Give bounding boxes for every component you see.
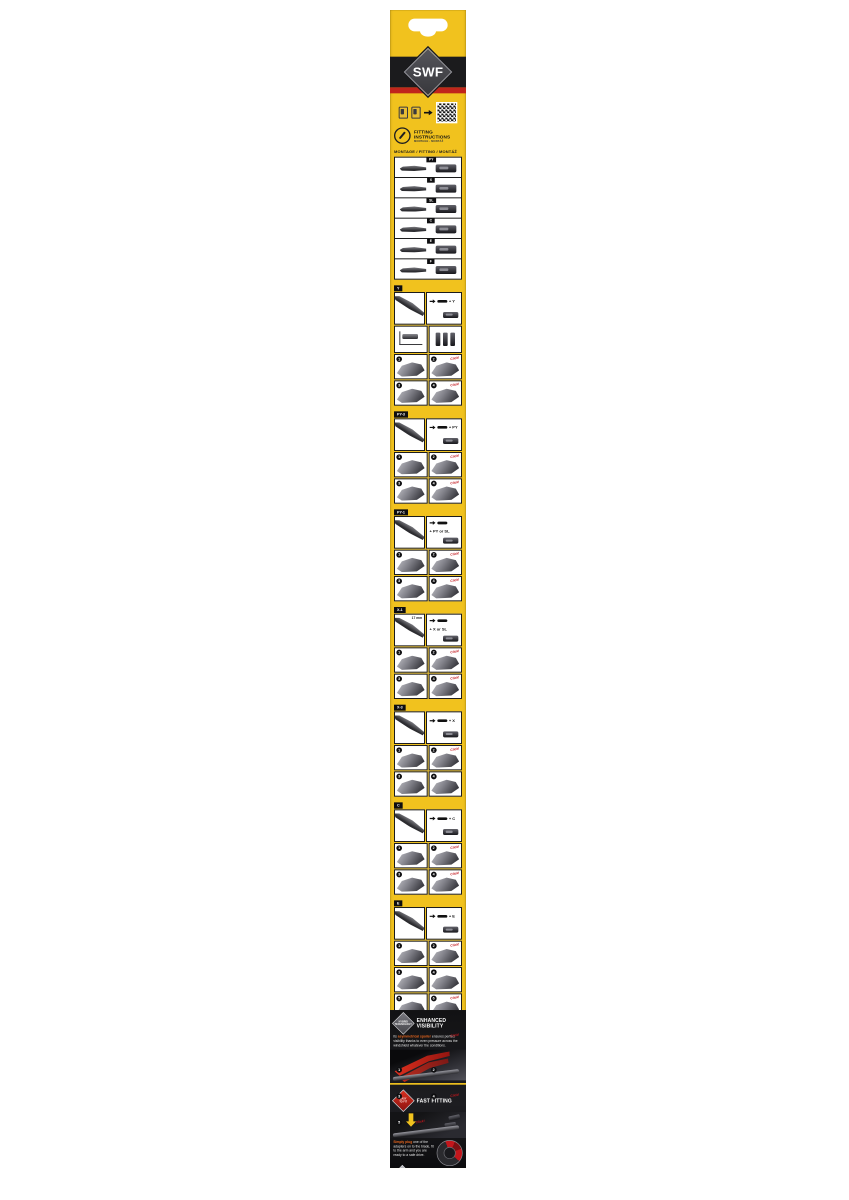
section-intro-row: + PY or SL — [394, 516, 462, 549]
arm-diagram-panel — [394, 907, 425, 940]
adapter-formula-panel: + X or SL — [426, 614, 462, 647]
fitting-instructions-titles: FITTING INSTRUCTIONS MONTAGE · MONTÁŽ — [414, 129, 462, 143]
step-number: 6 — [431, 996, 437, 1002]
steps-grid: 12Click!3456Click! — [394, 941, 462, 1019]
fitting-highlight: Simply plug — [393, 1140, 412, 1144]
arrow-right-icon — [430, 619, 436, 623]
step-number: 1 — [396, 748, 402, 754]
montage-heading: MONTAGE / FITTING / MONTÁŽ — [394, 149, 462, 154]
step-number: 2 — [431, 1067, 437, 1073]
adapter-overview-row: F — [395, 259, 461, 278]
step-photo — [431, 681, 459, 696]
adapter-variants-diagram — [430, 327, 462, 352]
adapter-wheel-image — [437, 1140, 463, 1166]
step-photo — [397, 583, 425, 598]
adapter-overview-row: SL — [395, 198, 461, 218]
wiper-blade-icon — [437, 915, 447, 918]
arrow-right-icon — [430, 914, 436, 918]
fitting-section-c: C+ C12Click!34Click! — [394, 802, 462, 894]
adapter-diagram — [443, 636, 458, 642]
section-intro-row: 17 mm+ X or SL — [394, 614, 462, 647]
step-number: 2 — [431, 845, 437, 851]
adapter-overview-row: PY — [395, 158, 461, 178]
adapter-overview: PYXSLCEF — [394, 157, 462, 280]
step-photo — [431, 752, 459, 767]
section-label: Y — [394, 285, 402, 291]
section-intro-row: + C — [394, 809, 462, 842]
click-note: Click! — [450, 871, 460, 876]
step-number: 1 — [396, 845, 402, 851]
step-photo — [431, 557, 459, 572]
section-extra-row — [394, 326, 462, 353]
adapter-diagram — [443, 312, 458, 318]
section-label: E — [394, 900, 402, 906]
wiper-arm-diagram — [394, 809, 425, 835]
step-number: 3 — [396, 774, 402, 780]
adapter-diagram — [436, 164, 457, 172]
step-photo — [397, 948, 425, 963]
step-number: 4 — [431, 969, 437, 975]
step-photo — [397, 361, 425, 376]
step-photo — [397, 485, 425, 500]
instruction-step: 1 — [394, 843, 428, 868]
adapter-type-label: PY — [426, 157, 436, 162]
click-note: Click! — [450, 578, 460, 583]
adapter-formula-panel: + PY or SL — [426, 516, 462, 549]
instruction-step: 1 — [394, 647, 428, 672]
hybrid-badge-text: HYBRIDTECHNOLOGY — [395, 1021, 412, 1026]
formula-text: + X — [449, 718, 455, 723]
adapter-image — [448, 1114, 460, 1121]
formula-text: + PY — [449, 425, 458, 430]
adapter-type-label: SL — [426, 198, 436, 203]
instruction-step: 2Click! — [429, 550, 463, 575]
adapter-overview-row: X — [395, 178, 461, 198]
step-photo — [431, 654, 459, 669]
adapter-formula-panel: + X — [426, 712, 462, 745]
formula-text: + E — [449, 914, 455, 919]
instruction-step: 4Click! — [429, 674, 463, 699]
step-photo — [431, 850, 459, 865]
step-photo — [431, 485, 459, 500]
wiper-arm-diagram — [400, 185, 427, 192]
step-photo — [397, 459, 425, 474]
instruction-step: 2Click! — [429, 647, 463, 672]
instruction-step: 1 — [394, 452, 428, 477]
easy-to-fit-badge: EASYTO FIT — [392, 1089, 415, 1112]
fast-fitting-block: EASYTO FIT FAST FITTING — [390, 1087, 466, 1110]
wiper-arm-diagram — [394, 418, 425, 444]
step-number: 2 — [431, 943, 437, 949]
adapter-variants-panel — [429, 326, 463, 353]
fitting-section-py-3: PY-3+ PY12Click!34Click! — [394, 411, 462, 503]
formula-text: + Y — [449, 299, 455, 304]
arrow-down-icon — [409, 1113, 414, 1122]
wiper-blade-icon — [437, 619, 447, 622]
arrow-right-icon — [430, 299, 436, 303]
wiper-arm-diagram — [400, 165, 427, 172]
blade-pack-icon — [399, 107, 408, 119]
step-photo — [397, 876, 425, 891]
adapter-formula-panel: + E — [426, 907, 462, 940]
fitting-section-x-1: X-117 mm+ X or SL12Click!34Click! — [394, 607, 462, 699]
hook-ruler-diagram — [399, 331, 422, 345]
step-number: 3 — [396, 383, 402, 389]
click-note: Click! — [450, 480, 460, 485]
wiper-arm-diagram — [394, 907, 425, 933]
brand-band: SWF — [390, 57, 466, 88]
fitting-section-y: Y+ Y12Click!34Click! — [394, 285, 462, 406]
arrow-right-icon — [424, 110, 433, 115]
instruction-step: 3 — [394, 380, 428, 405]
step-photo — [431, 876, 459, 891]
step-photo — [397, 752, 425, 767]
wiper-arm-diagram — [394, 292, 425, 318]
adapter-diagram — [443, 538, 458, 544]
adapter-variant-icon — [443, 333, 448, 346]
adapter-diagram — [443, 438, 458, 444]
instruction-step: 3 — [394, 772, 428, 797]
instruction-step: 4 — [429, 967, 463, 992]
steps-grid: 12Click!34Click! — [394, 452, 462, 504]
instruction-step: 3 — [394, 869, 428, 894]
step-number: 2 — [431, 552, 437, 558]
arrow-right-icon — [430, 521, 436, 525]
adapter-diagram — [443, 731, 458, 737]
section-intro-row: + PY — [394, 418, 462, 451]
adapter-diagram — [436, 266, 457, 274]
adapter-diagram — [436, 225, 457, 233]
fitting-instructions-header: FITTING INSTRUCTIONS MONTAGE · MONTÁŽ — [394, 127, 462, 144]
swf-wiper-blade-package: SWF FITTING INSTRUCTIONS MONTAGE · MONTÁ… — [390, 10, 466, 1168]
step-photo — [431, 583, 459, 598]
instruction-step: 2Click! — [429, 843, 463, 868]
instruction-step: 4Click! — [429, 380, 463, 405]
step-photo — [397, 557, 425, 572]
adapter-diagram — [436, 185, 457, 193]
instruction-step: 3 — [394, 576, 428, 601]
instruction-step: 3 — [394, 967, 428, 992]
step-photo — [397, 850, 425, 865]
fitting-instructions-intro — [394, 102, 462, 123]
click-note: Click! — [450, 382, 460, 387]
steps-grid: 12Click!34Click! — [394, 354, 462, 406]
click-note: Click! — [450, 676, 460, 681]
adapter-formula-panel: + C — [426, 809, 462, 842]
instruction-step: 2Click! — [429, 452, 463, 477]
fitting-section-x-3: X-3+ X12Click!34 — [394, 704, 462, 796]
adapter-diagram — [436, 246, 457, 254]
instruction-step: 4Click! — [429, 576, 463, 601]
adapter-type-label: F — [427, 259, 434, 264]
adapter-diagram — [443, 927, 458, 933]
fitting-section-py-1: PY-1+ PY or SL12Click!34Click! — [394, 509, 462, 601]
step-number: 1 — [396, 356, 402, 362]
click-note: Click! — [450, 747, 460, 752]
click-note: Click! — [450, 454, 460, 459]
instruction-step: 1 — [394, 550, 428, 575]
click-note: Click! — [450, 995, 460, 1000]
section-label: C — [394, 803, 403, 809]
instruction-step: 3 — [394, 478, 428, 503]
adapter-type-label: E — [427, 239, 435, 244]
step-number: 2 — [431, 650, 437, 656]
adapter-diagram — [443, 829, 458, 835]
step-number: 3 — [396, 969, 402, 975]
arrow-right-icon — [430, 817, 436, 821]
step-number: 4 — [431, 676, 437, 682]
wiper-arm-diagram — [394, 516, 425, 542]
step-photo — [431, 974, 459, 989]
click-note: Click! — [450, 356, 460, 361]
click-note: Click! — [450, 943, 460, 948]
visibility-title: ENHANCED VISIBILITY — [417, 1018, 463, 1029]
enhanced-visibility-block: HYBRIDTECHNOLOGY ENHANCED VISIBILITY Its… — [390, 1010, 466, 1048]
instruction-step: 4Click! — [429, 869, 463, 894]
adapter-formula-panel: + PY — [426, 418, 462, 451]
instruction-step: 2Click! — [429, 941, 463, 966]
instruction-step: 2Click! — [429, 745, 463, 770]
screwdriver-icon — [394, 127, 411, 144]
instructions-body: FITTING INSTRUCTIONS MONTAGE · MONTÁŽ MO… — [390, 93, 466, 1142]
wiper-arm-diagram — [400, 246, 427, 253]
step-photo — [397, 681, 425, 696]
step-photo — [397, 654, 425, 669]
wiper-arm-diagram — [400, 226, 427, 233]
fitting-section-e: E+ E12Click!3456Click! — [394, 900, 462, 1019]
wiper-blade-icon — [437, 522, 447, 525]
step-number: 4 — [431, 774, 437, 780]
measurement-label: 17 mm — [412, 616, 423, 620]
instruction-step: 4 — [429, 772, 463, 797]
qr-code — [436, 102, 457, 123]
instruction-step: 1 — [394, 745, 428, 770]
step-photo — [431, 459, 459, 474]
arrow-right-icon — [430, 425, 436, 429]
step-photo — [431, 779, 459, 794]
wiper-blade-icon — [437, 426, 447, 429]
fitting-text-row: Simply plug one of the adapters on to th… — [390, 1138, 466, 1166]
step-photo — [431, 388, 459, 403]
adapter-formula-panel: + Y — [426, 292, 462, 325]
steps-grid: 12Click!34 — [394, 745, 462, 797]
spoiler-photo — [390, 1050, 466, 1081]
section-label: PY-1 — [394, 509, 408, 515]
hybrid-technology-badge: HYBRIDTECHNOLOGY — [392, 1012, 415, 1035]
wiper-arm-diagram — [400, 206, 427, 213]
step-number: 3 — [396, 578, 402, 584]
step-number: 4 — [431, 1093, 437, 1099]
step-number: 3 — [396, 481, 402, 487]
section-intro-row: + E — [394, 907, 462, 940]
package-front: SWF FITTING INSTRUCTIONS MONTAGE · MONTÁ… — [390, 10, 466, 1168]
adapter-type-label: C — [427, 218, 435, 223]
instruction-step: 1 — [394, 941, 428, 966]
arm-diagram-panel — [394, 516, 425, 549]
step-number: 4 — [431, 872, 437, 878]
arm-diagram-panel — [394, 292, 425, 325]
click-note: Click! — [450, 649, 460, 654]
wiper-blade-icon — [437, 719, 447, 722]
click-note: Click! — [450, 845, 460, 850]
formula-text: + X or SL — [430, 627, 447, 632]
steps-grid: 12Click!34Click! — [394, 843, 462, 895]
arm-diagram-panel — [394, 712, 425, 745]
step-number: 2 — [431, 748, 437, 754]
easy-badge-text: EASYTO FIT — [399, 1098, 407, 1103]
arm-diagram-panel — [394, 809, 425, 842]
formula-text: + PY or SL — [430, 529, 450, 534]
adapter-variant-icon — [436, 333, 441, 346]
fitting-instructions-subtitle: MONTAGE · MONTÁŽ — [414, 140, 462, 143]
step-number: 1 — [396, 552, 402, 558]
adapter-variant-icon — [450, 333, 455, 346]
step-number: 5 — [396, 996, 402, 1002]
steps-grid: 12Click!34Click! — [394, 647, 462, 699]
wiper-blade-image — [393, 1125, 460, 1137]
section-label: X-3 — [394, 705, 406, 711]
adapter-photo — [390, 1112, 466, 1138]
step-photo — [431, 361, 459, 376]
arrow-right-icon — [430, 719, 436, 723]
section-intro-row: + X — [394, 712, 462, 745]
step-number: 3 — [396, 676, 402, 682]
click-note: Click! — [450, 552, 460, 557]
wiper-blade-icon — [437, 817, 447, 820]
step-photo — [397, 388, 425, 403]
hook-measure-panel — [394, 326, 428, 353]
adapter-type-label: X — [427, 178, 435, 183]
step-number: 4 — [431, 383, 437, 389]
adapter-overview-row: C — [395, 219, 461, 239]
step-photo — [397, 779, 425, 794]
instruction-step: 4Click! — [429, 478, 463, 503]
arm-diagram-panel — [394, 418, 425, 451]
wiper-blade-icon — [437, 300, 447, 303]
fitting-instructions-title: FITTING INSTRUCTIONS — [414, 129, 462, 140]
step-number: 3 — [396, 872, 402, 878]
swf-logo-text: SWF — [413, 65, 444, 80]
step-number: 2 — [431, 454, 437, 460]
fitting-text: Simply plug one of the adapters on to th… — [393, 1140, 434, 1157]
step-photo — [397, 974, 425, 989]
step-number: 1 — [396, 454, 402, 460]
section-label: X-1 — [394, 607, 406, 613]
section-intro-row: + Y — [394, 292, 462, 325]
euro-hang-slot — [408, 19, 447, 32]
step-number: 4 — [431, 578, 437, 584]
section-label: PY-3 — [394, 411, 408, 417]
formula-text: + C — [449, 816, 455, 821]
visibility-highlight: asymmetrical spoiler — [398, 1035, 431, 1039]
visibility-header: HYBRIDTECHNOLOGY ENHANCED VISIBILITY — [393, 1014, 462, 1033]
instruction-step: 2Click! — [429, 354, 463, 379]
step-number: 1 — [396, 650, 402, 656]
step-number: 2 — [431, 356, 437, 362]
instruction-step: 1 — [394, 354, 428, 379]
yellow-divider — [390, 1083, 466, 1085]
instruction-step: 3 — [394, 674, 428, 699]
arm-diagram-panel: 17 mm — [394, 614, 425, 647]
steps-grid: 12Click!34Click! — [394, 550, 462, 602]
blade-pack-icon — [411, 107, 420, 119]
step-number: 1 — [396, 943, 402, 949]
wiper-arm-diagram — [394, 712, 425, 738]
step-photo — [431, 948, 459, 963]
adapter-diagram — [436, 205, 457, 213]
step-number: 4 — [431, 481, 437, 487]
wiper-arm-diagram — [400, 267, 427, 274]
adapter-overview-row: E — [395, 239, 461, 259]
